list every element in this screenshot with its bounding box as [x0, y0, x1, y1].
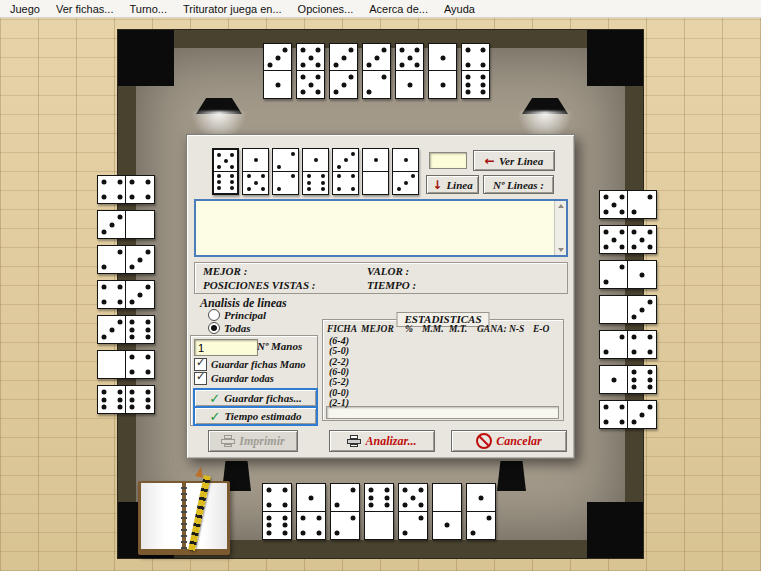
- pip: [640, 272, 645, 277]
- checkbox-guardar-todas[interactable]: ✓ Guardar todas: [194, 372, 274, 385]
- domino-half: [467, 484, 495, 512]
- pip: [275, 55, 280, 60]
- pip: [130, 265, 135, 270]
- pip: [130, 397, 135, 402]
- pip: [130, 389, 135, 394]
- scroll-up-button[interactable]: [555, 201, 566, 211]
- table-domino-left-2: [97, 245, 155, 274]
- domino-half: [264, 44, 291, 71]
- pip: [619, 245, 624, 250]
- pip: [230, 153, 234, 157]
- tiempo-estimado-button[interactable]: ✓ Tiempo estimado: [193, 406, 318, 426]
- domino-half: [333, 149, 358, 172]
- pip: [254, 158, 258, 162]
- pip: [267, 515, 272, 520]
- pip: [307, 174, 311, 178]
- pip: [619, 229, 624, 234]
- pip: [471, 530, 476, 535]
- notebook: [138, 481, 230, 555]
- pip: [291, 152, 295, 156]
- pip: [612, 377, 617, 382]
- pip: [619, 210, 624, 215]
- pip: [382, 74, 387, 79]
- domino-half: [600, 331, 628, 358]
- pip: [130, 335, 135, 340]
- pip: [300, 47, 305, 52]
- pip: [415, 63, 420, 68]
- pip: [407, 55, 412, 60]
- valor-label: VALOR :: [367, 265, 409, 277]
- pip: [102, 230, 107, 235]
- num-lineas-label: Nº Lineas :: [493, 179, 544, 191]
- pip: [384, 488, 389, 493]
- table-domino-right-6: [599, 400, 657, 429]
- printer-icon: [347, 435, 361, 447]
- pip: [418, 503, 423, 508]
- pip: [301, 530, 306, 535]
- table-domino-top-6: [461, 43, 490, 99]
- pip: [282, 488, 287, 493]
- pip: [337, 174, 341, 178]
- analizar-button[interactable]: Analizar...: [329, 430, 435, 452]
- table-domino-top-3: [362, 43, 391, 99]
- stats-header-5: GANA: N-S: [477, 324, 524, 334]
- table-domino-left-3: [97, 280, 155, 309]
- table-domino-left-4: [97, 315, 155, 344]
- domino-half: [600, 261, 628, 288]
- pip: [309, 495, 314, 500]
- green-check-icon: ✓: [209, 392, 220, 405]
- game-area: ← Ver Linea ↓ Linea Nº Lineas : MEJOR : …: [0, 18, 761, 571]
- pip: [145, 397, 150, 402]
- pip: [247, 174, 251, 178]
- table-corner-post: [118, 30, 174, 86]
- pip: [397, 187, 401, 191]
- domino-half: [627, 401, 656, 428]
- pip: [145, 319, 150, 324]
- hand-domino-6[interactable]: [392, 148, 419, 195]
- radio-todas[interactable]: Todas: [208, 322, 251, 334]
- pip: [267, 63, 272, 68]
- cancel-icon: [476, 433, 492, 449]
- pip: [130, 370, 135, 375]
- pip: [314, 158, 318, 162]
- pip: [267, 523, 272, 528]
- pip: [481, 63, 486, 68]
- posiciones-vistas-label: POSICIONES VISTAS :: [203, 279, 316, 291]
- guardar-fichas-button[interactable]: ✓ Guardar fichas...: [193, 388, 318, 408]
- domino-half: [331, 484, 359, 512]
- pip: [647, 229, 652, 234]
- pip: [350, 515, 355, 520]
- pip: [465, 74, 470, 79]
- table-domino-right-0: [599, 190, 657, 219]
- stats-header-1: MEJOR: [361, 324, 394, 334]
- analizar-label: Analizar...: [365, 434, 416, 449]
- domino-half: [600, 226, 628, 253]
- pip: [369, 488, 374, 493]
- ver-linea-label: Ver Linea: [499, 155, 543, 167]
- table-domino-right-1: [599, 225, 657, 254]
- domino-half: [365, 484, 393, 512]
- pip: [130, 405, 135, 410]
- pip: [335, 503, 340, 508]
- pip: [415, 47, 420, 52]
- pip: [316, 63, 321, 68]
- table-domino-bottom-0: [262, 483, 292, 540]
- pip: [647, 385, 652, 390]
- radio-todas-label: Todas: [224, 322, 251, 334]
- domino-half: [214, 171, 237, 194]
- domino-half: [330, 70, 357, 98]
- pip: [145, 405, 150, 410]
- pip: [366, 90, 371, 95]
- pip: [145, 195, 150, 200]
- pip: [604, 404, 609, 409]
- table-domino-left-1: [97, 210, 155, 239]
- pip: [102, 179, 107, 184]
- pip: [632, 369, 637, 374]
- pip: [632, 245, 637, 250]
- pip: [316, 530, 321, 535]
- pip: [283, 47, 288, 52]
- down-arrow-icon: ↓: [432, 179, 442, 191]
- cancelar-label: Cancelar: [496, 434, 541, 449]
- domino-half: [331, 511, 359, 540]
- pip: [403, 530, 408, 535]
- menu-item-opciones[interactable]: Opciones...: [290, 1, 362, 17]
- domino-half: [303, 171, 328, 195]
- domino-half: [462, 44, 489, 71]
- left-arrow-icon: ←: [485, 155, 495, 167]
- domino-half: [399, 484, 427, 512]
- num-lineas-button[interactable]: Nº Lineas :: [483, 175, 554, 194]
- radio-principal[interactable]: Principal: [208, 309, 266, 321]
- table-domino-top-1: [296, 43, 325, 99]
- pip: [411, 495, 416, 500]
- table-domino-top-5: [428, 43, 457, 99]
- menu-item-triturator-juega-en[interactable]: Triturator juega en...: [175, 1, 290, 17]
- pip: [217, 153, 221, 157]
- hand-domino-0[interactable]: [212, 148, 239, 195]
- pip: [486, 515, 491, 520]
- pip: [337, 165, 341, 169]
- pip: [301, 515, 306, 520]
- domino-half: [393, 171, 418, 195]
- domino-half: [600, 366, 628, 393]
- pip: [632, 420, 637, 425]
- pip: [145, 179, 150, 184]
- pip: [369, 495, 374, 500]
- checkbox-guardar-fichas-mano[interactable]: ✓ Guardar fichas Mano: [194, 358, 306, 371]
- pip: [117, 195, 122, 200]
- pip: [479, 495, 484, 500]
- table-domino-bottom-5: [432, 483, 462, 540]
- table-domino-right-4: [599, 330, 657, 359]
- pip: [350, 488, 355, 493]
- mejor-label: MEJOR :: [203, 265, 247, 277]
- pip: [418, 515, 423, 520]
- pip: [308, 55, 313, 60]
- pip: [102, 300, 107, 305]
- pip: [321, 187, 325, 191]
- pip: [145, 354, 150, 359]
- pip: [102, 195, 107, 200]
- menu-item-ver-fichas[interactable]: Ver fichas...: [48, 1, 121, 17]
- radio-principal-label: Principal: [224, 309, 266, 321]
- domino-half: [399, 511, 427, 540]
- pip: [418, 488, 423, 493]
- ver-linea-button[interactable]: ← Ver Linea: [473, 150, 555, 171]
- down-triangle-icon: [558, 248, 564, 252]
- pip: [445, 523, 450, 528]
- linea-button[interactable]: ↓ Linea: [426, 175, 479, 194]
- pip: [604, 245, 609, 250]
- domino-half: [98, 246, 126, 273]
- pip: [300, 63, 305, 68]
- pip: [647, 404, 652, 409]
- domino-half: [297, 44, 324, 71]
- table-domino-right-3: [599, 295, 657, 324]
- pip: [647, 350, 652, 355]
- pip: [647, 334, 652, 339]
- domino-half: [600, 401, 628, 428]
- domino-half: [363, 44, 390, 71]
- pip: [632, 377, 637, 382]
- pip: [138, 257, 143, 262]
- guardar-fichas-mano-label: Guardar fichas Mano: [211, 359, 306, 370]
- pip: [604, 420, 609, 425]
- pip: [261, 174, 265, 178]
- domino-half: [627, 261, 656, 288]
- pip: [117, 300, 122, 305]
- pip: [102, 265, 107, 270]
- guardar-fichas-label: Guardar fichas...: [224, 392, 302, 404]
- pip: [145, 327, 150, 332]
- pip: [217, 174, 221, 178]
- domino-half: [433, 484, 461, 512]
- cancelar-button[interactable]: Cancelar: [451, 430, 567, 452]
- pip: [102, 335, 107, 340]
- pip: [341, 55, 346, 60]
- pip: [282, 530, 287, 535]
- domino-half: [214, 150, 237, 172]
- pip: [110, 327, 115, 332]
- domino-half: [363, 171, 388, 195]
- line-number-input[interactable]: [429, 152, 467, 169]
- hand-domino-4[interactable]: [332, 148, 359, 195]
- domino-half: [600, 296, 628, 323]
- pip: [465, 82, 470, 87]
- pip: [267, 503, 272, 508]
- notebook-page: [141, 483, 182, 549]
- imprimir-button[interactable]: Imprimir: [208, 430, 298, 452]
- pip: [411, 174, 415, 178]
- domino-half: [125, 316, 154, 343]
- pip: [117, 284, 122, 289]
- pip: [275, 82, 280, 87]
- pip: [308, 82, 313, 87]
- pip: [604, 194, 609, 199]
- pip: [230, 165, 234, 169]
- table-corner-post: [587, 30, 643, 86]
- hand-domino-2[interactable]: [272, 148, 299, 195]
- domino-half: [393, 149, 418, 172]
- guardar-todas-label: Guardar todas: [211, 373, 274, 384]
- pip: [110, 222, 115, 227]
- pip: [604, 350, 609, 355]
- tiempo-label: TIEMPO :: [367, 279, 416, 291]
- pip: [267, 488, 272, 493]
- pip: [481, 90, 486, 95]
- pip: [145, 249, 150, 254]
- pip: [384, 495, 389, 500]
- pip: [300, 74, 305, 79]
- pip: [145, 284, 150, 289]
- pip: [369, 503, 374, 508]
- pip: [130, 319, 135, 324]
- pip: [117, 319, 122, 324]
- domino-half: [297, 511, 325, 540]
- tiempo-estimado-label: Tiempo estimado: [225, 410, 302, 422]
- domino-half: [263, 484, 291, 512]
- scroll-down-button[interactable]: [555, 245, 566, 255]
- hand-domino-1[interactable]: [242, 148, 269, 195]
- pip: [465, 63, 470, 68]
- pip: [640, 412, 645, 417]
- menu-item-juego[interactable]: Juego: [2, 1, 48, 17]
- pip: [145, 389, 150, 394]
- domino-half: [273, 171, 298, 195]
- domino-half: [600, 191, 628, 218]
- domino-half: [125, 386, 154, 413]
- pip: [316, 90, 321, 95]
- table-domino-top-0: [263, 43, 292, 99]
- radio-selected-icon: [208, 322, 220, 334]
- hand-domino-3[interactable]: [302, 148, 329, 195]
- stats-header-0: FICHA: [327, 324, 357, 334]
- domino-half: [365, 511, 393, 540]
- table-domino-bottom-4: [398, 483, 428, 540]
- pip: [647, 369, 652, 374]
- stats-header-6: E-O: [533, 324, 549, 334]
- pip: [640, 307, 645, 312]
- domino-half: [627, 191, 656, 218]
- pip: [333, 90, 338, 95]
- pip: [282, 523, 287, 528]
- results-panel: MEJOR : VALOR : POSICIONES VISTAS : TIEM…: [194, 262, 568, 294]
- domino-half: [297, 484, 325, 512]
- table-domino-bottom-6: [466, 483, 496, 540]
- pip: [102, 397, 107, 402]
- pip: [403, 503, 408, 508]
- pip: [382, 47, 387, 52]
- domino-half: [98, 176, 126, 203]
- n-manos-input[interactable]: [194, 339, 258, 356]
- pip: [307, 181, 311, 185]
- domino-half: [627, 226, 656, 253]
- pip: [341, 82, 346, 87]
- checkbox-checked-icon: ✓: [194, 372, 207, 385]
- pip: [117, 179, 122, 184]
- table-domino-left-6: [97, 385, 155, 414]
- pip: [335, 530, 340, 535]
- menu-item-turno[interactable]: Turno...: [121, 1, 175, 17]
- printer-icon: [221, 435, 235, 447]
- table-domino-right-2: [599, 260, 657, 289]
- domino-half: [125, 176, 154, 203]
- domino-half: [98, 351, 126, 378]
- pip: [632, 210, 637, 215]
- pip: [145, 370, 150, 375]
- domino-half: [125, 246, 154, 273]
- pip: [465, 47, 470, 52]
- pip: [102, 284, 107, 289]
- table-corner-post: [587, 502, 643, 558]
- table-leg: [497, 461, 526, 491]
- pip: [321, 174, 325, 178]
- domino-half: [98, 281, 126, 308]
- pip: [374, 55, 379, 60]
- pip: [604, 210, 609, 215]
- pip: [217, 165, 221, 169]
- menu-item-ayuda[interactable]: Ayuda: [436, 1, 483, 17]
- pip: [640, 237, 645, 242]
- pip: [117, 397, 122, 402]
- statistics-panel: ESTADISTICAS FICHAMEJOR%M.M.M.T.GANA: N-…: [322, 319, 564, 421]
- domino-half: [433, 511, 461, 540]
- pip: [307, 187, 311, 191]
- pip: [130, 300, 135, 305]
- menu-item-acerca-de[interactable]: Acerca de...: [361, 1, 436, 17]
- pip: [481, 47, 486, 52]
- pip: [282, 515, 287, 520]
- pip: [230, 186, 234, 190]
- domino-half: [303, 149, 328, 172]
- imprimir-label: Imprimir: [239, 434, 284, 449]
- pip: [440, 82, 445, 87]
- pip: [481, 74, 486, 79]
- pip: [277, 165, 281, 169]
- pip: [351, 187, 355, 191]
- pip: [619, 194, 624, 199]
- pip: [130, 354, 135, 359]
- pip: [230, 174, 234, 178]
- memo-scrollbar[interactable]: [554, 201, 566, 255]
- stats-row-ficha: (2-1): [329, 397, 349, 408]
- domino-half: [125, 281, 154, 308]
- pip: [277, 187, 281, 191]
- pip: [217, 180, 221, 184]
- domino-half: [125, 351, 154, 378]
- check-icon: ✓: [196, 356, 205, 369]
- pip: [130, 195, 135, 200]
- hand-domino-5[interactable]: [362, 148, 389, 195]
- pip: [337, 187, 341, 191]
- pip: [316, 47, 321, 52]
- table-domino-bottom-1: [296, 483, 326, 540]
- pip: [282, 503, 287, 508]
- pip: [399, 47, 404, 52]
- lines-textarea[interactable]: [194, 199, 568, 257]
- domino-half: [263, 511, 291, 540]
- analysis-dialog: ← Ver Linea ↓ Linea Nº Lineas : MEJOR : …: [186, 134, 575, 459]
- domino-half: [243, 171, 268, 195]
- domino-half: [98, 386, 126, 413]
- domino-half: [467, 511, 495, 540]
- pip: [102, 405, 107, 410]
- pip: [351, 174, 355, 178]
